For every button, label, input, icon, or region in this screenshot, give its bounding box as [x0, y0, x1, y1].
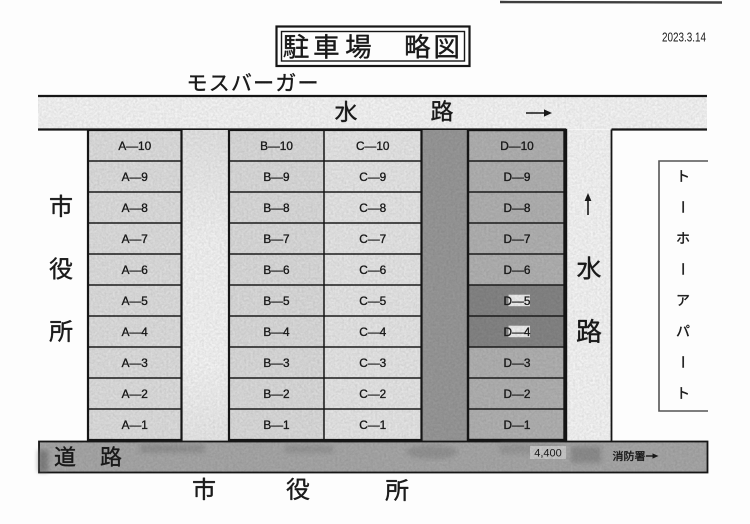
svg-text:2023.3.14: 2023.3.14	[662, 31, 706, 45]
